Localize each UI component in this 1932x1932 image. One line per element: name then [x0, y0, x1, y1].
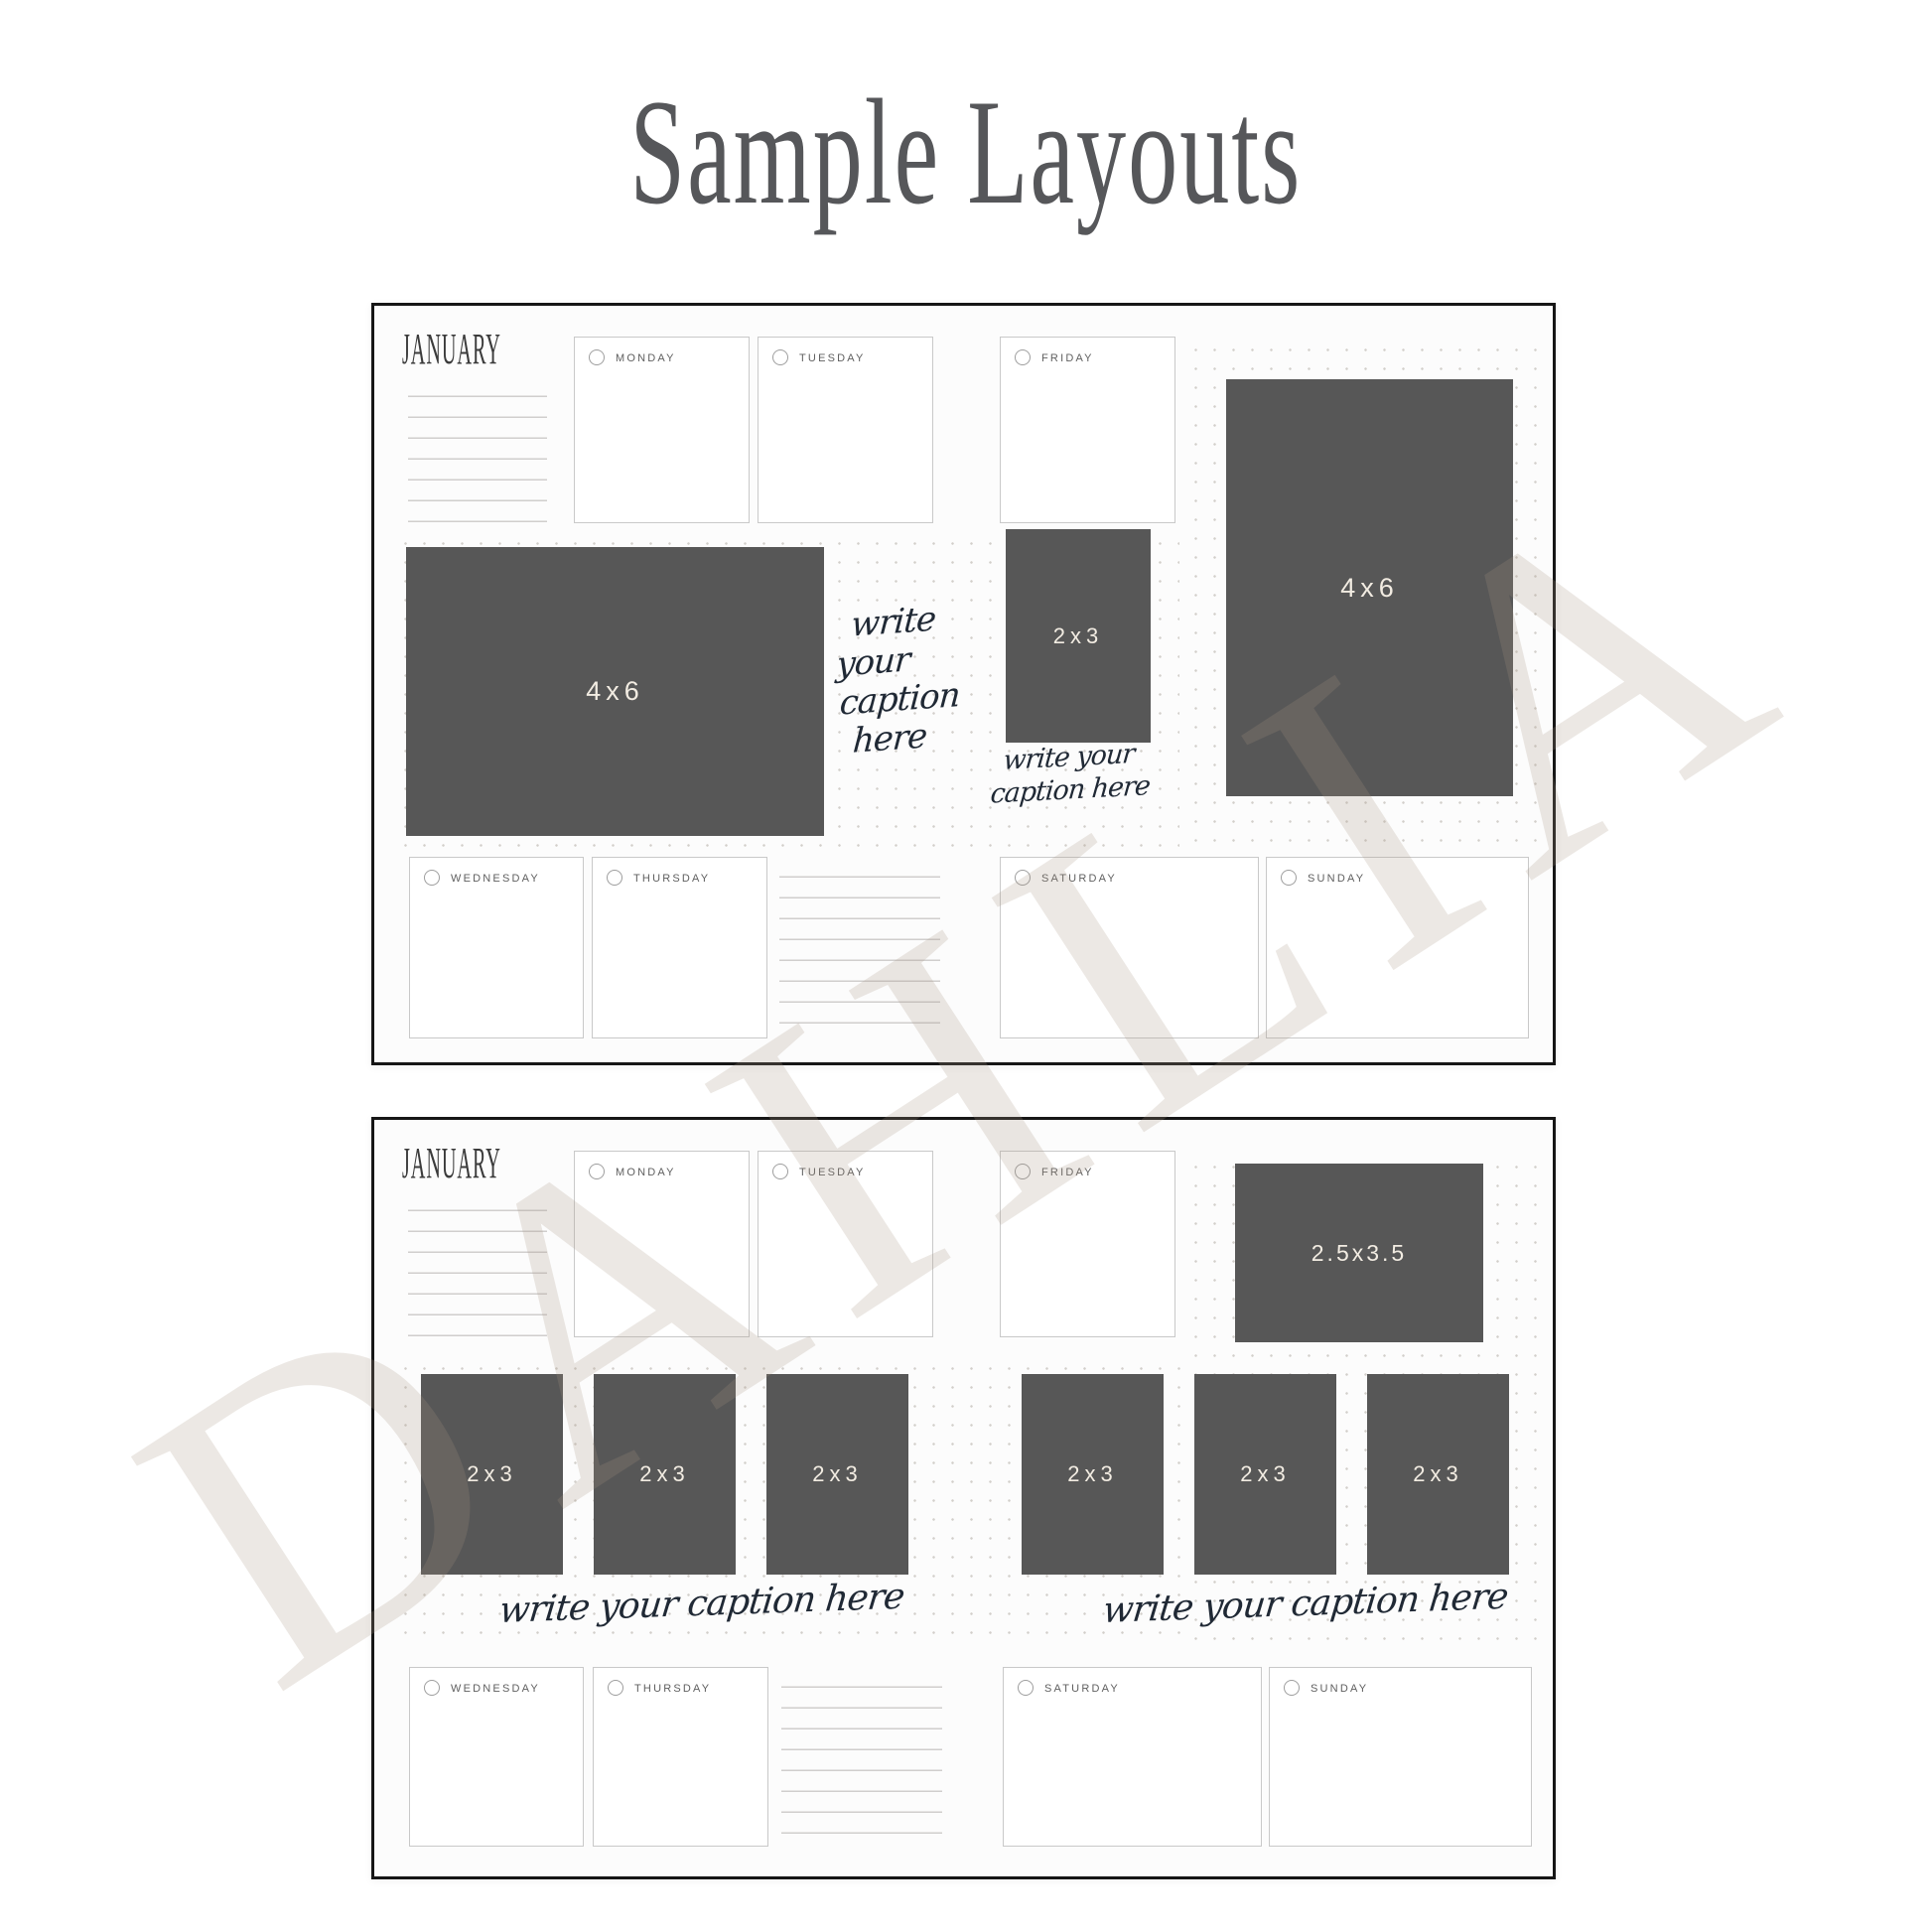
month-note-lines: [408, 376, 547, 523]
journal-note-lines: [781, 1667, 942, 1835]
photo-placeholder-2x3: 2x3: [594, 1374, 736, 1575]
day-box-sunday: SUNDAY: [1266, 857, 1529, 1038]
caption-script-two-line: write your caption here: [989, 734, 1203, 810]
day-label: SUNDAY: [1308, 873, 1365, 885]
day-box-thursday: THURSDAY: [593, 1667, 768, 1847]
day-circle-icon: [589, 349, 605, 365]
day-label: MONDAY: [616, 352, 676, 364]
photo-placeholder-2x3: 2x3: [1367, 1374, 1509, 1575]
day-circle-icon: [589, 1164, 605, 1179]
journal-note-lines: [779, 857, 940, 1025]
photo-size-label: 2x3: [1240, 1461, 1290, 1487]
day-label: MONDAY: [616, 1167, 676, 1178]
photo-placeholder-2x3: 2x3: [1022, 1374, 1164, 1575]
day-box-thursday: THURSDAY: [592, 857, 767, 1038]
month-note-lines: [408, 1190, 547, 1337]
day-circle-icon: [1015, 870, 1031, 886]
photo-placeholder-4x6-portrait: 4x6: [1226, 379, 1513, 796]
photo-size-label: 2x3: [1413, 1461, 1462, 1487]
day-box-tuesday: TUESDAY: [758, 337, 933, 523]
day-box-saturday: SATURDAY: [1003, 1667, 1262, 1847]
day-circle-icon: [1015, 349, 1031, 365]
photo-placeholder-2x3: 2x3: [1006, 529, 1151, 743]
sample-layout-panel-1: JANUARY MONDAY TUESDAY FRIDAY 4x6 2x3 4x…: [371, 303, 1556, 1065]
photo-size-label: 2x3: [1053, 623, 1103, 649]
day-label: TUESDAY: [799, 1167, 866, 1178]
day-box-tuesday: TUESDAY: [758, 1151, 933, 1337]
day-label: SATURDAY: [1044, 1683, 1120, 1695]
photo-placeholder-2x3: 2x3: [1194, 1374, 1336, 1575]
day-label: WEDNESDAY: [451, 1683, 540, 1695]
day-label: FRIDAY: [1041, 352, 1094, 364]
day-circle-icon: [424, 870, 440, 886]
day-box-wednesday: WEDNESDAY: [409, 857, 584, 1038]
day-box-wednesday: WEDNESDAY: [409, 1667, 584, 1847]
day-circle-icon: [1015, 1164, 1031, 1179]
page-title: Sample Layouts: [0, 73, 1932, 232]
photo-size-label: 4x6: [1340, 573, 1399, 604]
caption-script-stacked: write your caption here: [828, 595, 1008, 762]
day-circle-icon: [424, 1680, 440, 1696]
day-box-monday: MONDAY: [574, 337, 750, 523]
photo-placeholder-2.5x3.5: 2.5x3.5: [1235, 1164, 1483, 1342]
day-label: SATURDAY: [1041, 873, 1117, 885]
photo-size-label: 2x3: [1067, 1461, 1117, 1487]
day-label: THURSDAY: [633, 873, 710, 885]
day-label: TUESDAY: [799, 352, 866, 364]
photo-size-label: 2x3: [812, 1461, 862, 1487]
day-label: SUNDAY: [1311, 1683, 1368, 1695]
day-circle-icon: [608, 1680, 623, 1696]
photo-size-label: 2.5x3.5: [1311, 1240, 1407, 1267]
photo-placeholder-2x3: 2x3: [766, 1374, 908, 1575]
day-box-monday: MONDAY: [574, 1151, 750, 1337]
photo-placeholder-2x3: 2x3: [421, 1374, 563, 1575]
day-circle-icon: [772, 1164, 788, 1179]
day-box-sunday: SUNDAY: [1269, 1667, 1532, 1847]
photo-size-label: 4x6: [586, 676, 644, 707]
day-circle-icon: [607, 870, 622, 886]
day-circle-icon: [1284, 1680, 1300, 1696]
page-title-text: Sample Layouts: [630, 73, 1303, 232]
day-box-friday: FRIDAY: [1000, 1151, 1175, 1337]
day-circle-icon: [772, 349, 788, 365]
day-circle-icon: [1018, 1680, 1034, 1696]
photo-size-label: 2x3: [467, 1461, 516, 1487]
photo-size-label: 2x3: [639, 1461, 689, 1487]
sample-layout-panel-2: JANUARY MONDAY TUESDAY FRIDAY 2.5x3.5 2x…: [371, 1117, 1556, 1879]
day-circle-icon: [1281, 870, 1297, 886]
day-box-saturday: SATURDAY: [1000, 857, 1259, 1038]
photo-placeholder-4x6-landscape: 4x6: [406, 547, 824, 836]
day-label: FRIDAY: [1041, 1167, 1094, 1178]
day-label: WEDNESDAY: [451, 873, 540, 885]
day-label: THURSDAY: [634, 1683, 711, 1695]
day-box-friday: FRIDAY: [1000, 337, 1175, 523]
